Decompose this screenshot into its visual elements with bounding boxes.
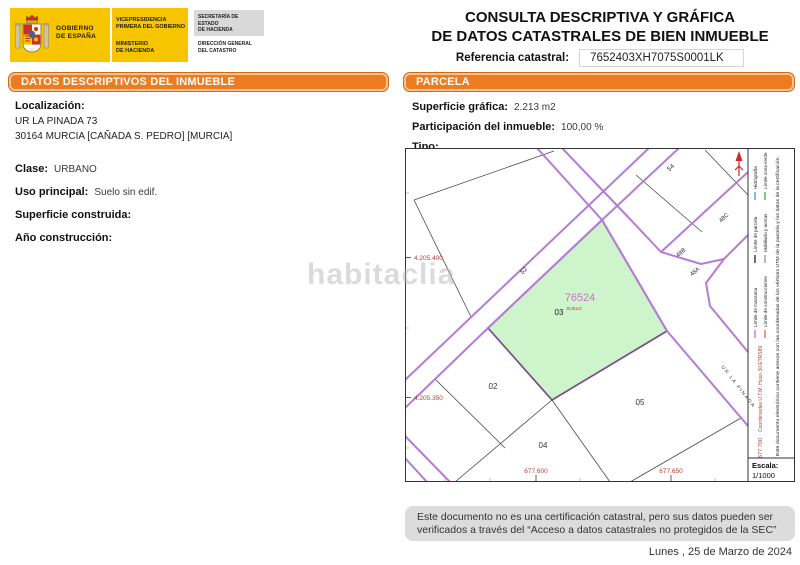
direccion-line1: DIRECCIÓN GENERAL bbox=[198, 41, 252, 48]
spain-coat-of-arms-icon bbox=[14, 12, 50, 58]
participacion-label: Participación del inmueble: bbox=[412, 121, 555, 133]
vicepresidencia-line1: VICEPRESIDENCIA bbox=[116, 17, 185, 24]
secretaria-line1: SECRETARÍA DE ESTADO bbox=[198, 14, 260, 27]
parcel-04-label: 04 bbox=[539, 441, 548, 450]
coord-y2: 4.205.350 bbox=[414, 395, 443, 402]
field-superficie-construida: Superficie construida: bbox=[15, 205, 390, 223]
page-title: CONSULTA DESCRIPTIVA Y GRÁFICA DE DATOS … bbox=[405, 9, 795, 46]
vicepresidencia-label: VICEPRESIDENCIA PRIMERA DEL GOBIERNO bbox=[116, 17, 185, 31]
page-title-line2: DE DATOS CATASTRALES DE BIEN INMUEBLE bbox=[405, 28, 795, 47]
cadastral-document-page: GOBIERNO DE ESPAÑA VICEPRESIDENCIA PRIME… bbox=[0, 0, 800, 565]
scale-value: 1/1000 bbox=[752, 471, 775, 480]
scale-box: Escala: 1/1000 bbox=[748, 458, 795, 482]
reference-label: Referencia catastral: bbox=[456, 52, 569, 64]
parcel-section-header: PARCELA bbox=[403, 72, 795, 92]
vicepresidencia-line2: PRIMERA DEL GOBIERNO bbox=[116, 24, 185, 31]
uso-label: Uso principal: bbox=[15, 186, 88, 198]
legend-item-parcela: Límite de parcela bbox=[753, 216, 758, 252]
coord-y1: 4.205.400 bbox=[414, 255, 443, 262]
government-name: GOBIERNO DE ESPAÑA bbox=[56, 25, 96, 41]
subject-parcel-use: SUELO bbox=[566, 306, 582, 311]
cadastral-reference: Referencia catastral: 7652403XH7075S0001… bbox=[405, 49, 795, 67]
field-clase: Clase:URBANO bbox=[15, 159, 390, 177]
superficie-construida-label: Superficie construida: bbox=[15, 209, 131, 221]
direccion-general-label: DIRECCIÓN GENERAL DEL CATASTRO bbox=[198, 41, 252, 54]
government-header: GOBIERNO DE ESPAÑA VICEPRESIDENCIA PRIME… bbox=[10, 8, 272, 62]
legend-coord-note: Coordenadas U.T.M. Huso 30 ETRS89 bbox=[758, 346, 764, 432]
logo-divider bbox=[110, 8, 112, 62]
ministerio-line1: MINISTERIO bbox=[116, 41, 154, 48]
document-date: Lunes , 25 de Marzo de 2024 bbox=[500, 546, 792, 558]
government-name-line1: GOBIERNO bbox=[56, 25, 96, 33]
parcel-02-label: 02 bbox=[489, 382, 498, 391]
page-title-line1: CONSULTA DESCRIPTIVA Y GRÁFICA bbox=[405, 9, 795, 28]
uso-value: Suelo sin edif. bbox=[94, 187, 157, 198]
disclaimer-box: Este documento no es una certificación c… bbox=[405, 506, 795, 541]
ano-construccion-label: Año construcción: bbox=[15, 232, 112, 244]
scale-label: Escala: bbox=[752, 461, 778, 470]
legend-item-zona-verde: Límite zona verde bbox=[763, 152, 768, 189]
coord-x2: 677.650 bbox=[659, 468, 683, 475]
legend-item-hidrografia: Hidrografía bbox=[753, 166, 758, 189]
cadastral-map: 76524 03 SUELO 02 04 05 52 54 48B 48A 48… bbox=[405, 148, 795, 482]
field-uso-principal: Uso principal:Suelo sin edif. bbox=[15, 182, 390, 200]
legend-item-mobiliario: Mobiliario y aceras bbox=[763, 213, 768, 252]
clase-value: URBANO bbox=[54, 164, 97, 175]
participacion-value: 100,00 % bbox=[561, 122, 603, 133]
ministerio-label: MINISTERIO DE HACIENDA bbox=[116, 41, 154, 55]
parcel-05-label: 05 bbox=[636, 398, 645, 407]
address-line1: UR LA PINADA 73 bbox=[15, 116, 390, 127]
superficie-grafica-value: 2.213 m2 bbox=[514, 102, 556, 113]
reference-value: 7652403XH7075S0001LK bbox=[579, 49, 744, 67]
localizacion-label: Localización: bbox=[15, 100, 390, 112]
subject-parcel-number: 76524 bbox=[565, 292, 596, 304]
cadastral-map-svg: 76524 03 SUELO 02 04 05 52 54 48B 48A 48… bbox=[405, 148, 795, 482]
government-name-line2: DE ESPAÑA bbox=[56, 33, 96, 41]
coord-x1: 677.600 bbox=[524, 468, 548, 475]
descriptive-data-panel: Localización: UR LA PINADA 73 30164 MURC… bbox=[15, 100, 390, 246]
secretaria-box: SECRETARÍA DE ESTADO DE HACIENDA bbox=[194, 10, 264, 36]
coord-x3: 677.700 bbox=[758, 438, 764, 458]
superficie-grafica-label: Superficie gráfica: bbox=[412, 101, 508, 113]
legend-item-construcciones: Límite de construcciones bbox=[763, 275, 768, 327]
field-superficie-grafica: Superficie gráfica:2.213 m2 bbox=[412, 97, 792, 115]
ministerio-line2: DE HACIENDA bbox=[116, 48, 154, 55]
left-section-header: DATOS DESCRIPTIVOS DEL INMUEBLE bbox=[8, 72, 389, 92]
legend-doc-note: Este documento electrónico contiene anex… bbox=[775, 156, 780, 456]
field-participacion: Participación del inmueble:100,00 % bbox=[412, 117, 792, 135]
direccion-line2: DEL CATASTRO bbox=[198, 48, 252, 55]
clase-label: Clase: bbox=[15, 163, 48, 175]
address-line2: 30164 MURCIA [CAÑADA S. PEDRO] [MURCIA] bbox=[15, 131, 390, 142]
subject-parcel-sub: 03 bbox=[555, 308, 564, 317]
field-ano-construccion: Año construcción: bbox=[15, 228, 390, 246]
secretaria-line2: DE HACIENDA bbox=[198, 27, 260, 34]
legend-item-manzana: Límite de manzana bbox=[753, 287, 758, 327]
